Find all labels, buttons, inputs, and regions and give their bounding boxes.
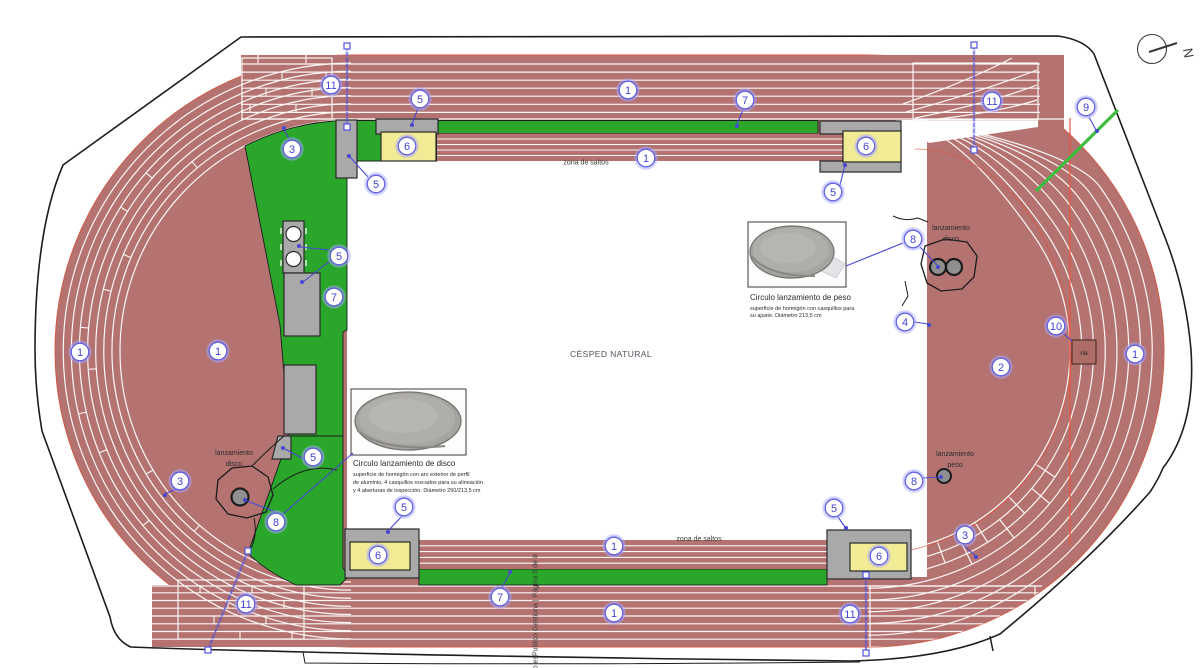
svg-text:1: 1 [611, 608, 617, 620]
svg-text:7: 7 [497, 592, 503, 604]
svg-text:6: 6 [863, 141, 869, 153]
svg-text:8: 8 [910, 234, 916, 246]
svg-text:5: 5 [417, 94, 423, 106]
svg-text:lanzamiento: lanzamiento [932, 225, 970, 232]
svg-text:N: N [1180, 47, 1196, 59]
svg-text:11: 11 [986, 96, 997, 108]
svg-text:1: 1 [611, 541, 617, 553]
svg-text:3: 3 [289, 144, 295, 156]
svg-text:lanzamiento: lanzamiento [215, 450, 253, 457]
svg-text:1: 1 [215, 346, 221, 358]
svg-text:1: 1 [77, 347, 83, 359]
svg-text:10: 10 [1050, 321, 1062, 333]
svg-text:2: 2 [998, 362, 1004, 374]
svg-text:1: 1 [625, 85, 631, 97]
svg-text:11: 11 [240, 599, 251, 611]
svg-text:5: 5 [373, 179, 379, 191]
svg-text:zona de saltos: zona de saltos [676, 536, 722, 543]
svg-text:lanzamiento: lanzamiento [936, 451, 974, 458]
svg-text:9: 9 [1083, 102, 1089, 114]
svg-text:superficie de hormigón con cas: superficie de hormigón con casquillos pa… [750, 306, 855, 312]
svg-text:5: 5 [831, 503, 837, 515]
svg-text:y 4 aberturas de inspección. D: y 4 aberturas de inspección. Diámetro 25… [353, 488, 481, 494]
svg-text:11: 11 [325, 80, 336, 92]
svg-text:disco: disco [226, 461, 242, 468]
svg-text:8: 8 [273, 517, 279, 529]
svg-text:su ajuste. Diámetro 213,5 cm: su ajuste. Diámetro 213,5 cm [750, 313, 822, 319]
svg-text:5: 5 [830, 187, 836, 199]
svg-text:7: 7 [742, 95, 748, 107]
svg-text:superficie de hormigón con aro: superficie de hormigón con aro exterior … [353, 472, 469, 478]
svg-text:de aluminio, 4 casquillos rosc: de aluminio, 4 casquillos roscados para … [353, 480, 483, 486]
svg-text:1: 1 [643, 153, 649, 165]
svg-text:7: 7 [331, 292, 337, 304]
svg-text:6: 6 [876, 551, 882, 563]
svg-text:3: 3 [177, 476, 183, 488]
svg-text:5: 5 [336, 251, 342, 263]
svg-text:8: 8 [911, 476, 917, 488]
svg-text:3: 3 [962, 530, 968, 542]
svg-text:CÉSPED NATURAL: CÉSPED NATURAL [570, 349, 652, 359]
svg-text:6: 6 [404, 141, 410, 153]
svg-text:5: 5 [401, 502, 407, 514]
svg-text:5: 5 [310, 452, 316, 464]
svg-text:peso: peso [947, 462, 962, 469]
svg-text:untamiento esPublico Gestiona: untamiento esPublico Gestiona | Página 5… [533, 554, 540, 668]
svg-text:6: 6 [375, 550, 381, 562]
svg-text:4: 4 [902, 317, 908, 329]
svg-text:Circulo lanzamiento de peso: Circulo lanzamiento de peso [750, 293, 851, 302]
svg-text:zona de saltos: zona de saltos [563, 160, 609, 167]
svg-text:ria: ria [1080, 350, 1088, 357]
svg-text:disco: disco [943, 236, 959, 243]
svg-text:Circulo lanzamiento de disco: Circulo lanzamiento de disco [353, 459, 456, 468]
svg-text:1: 1 [1132, 349, 1138, 361]
svg-text:11: 11 [844, 609, 855, 621]
